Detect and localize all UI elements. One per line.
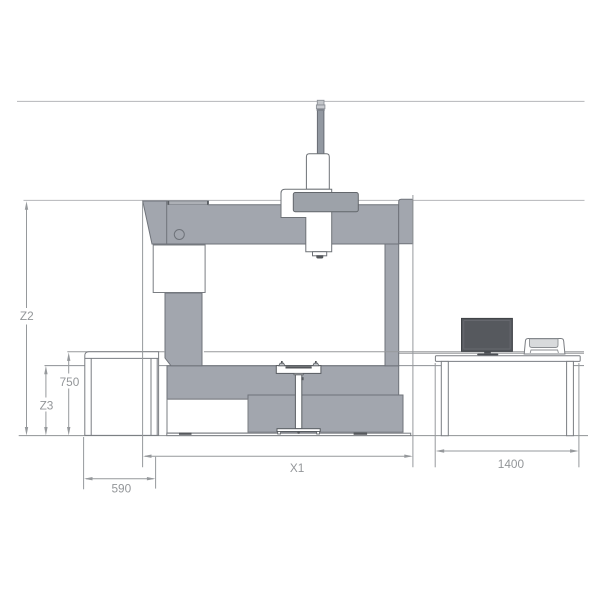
svg-text:590: 590 bbox=[112, 482, 132, 496]
svg-text:Z2: Z2 bbox=[20, 309, 34, 323]
svg-text:Z3: Z3 bbox=[40, 398, 54, 412]
svg-text:750: 750 bbox=[60, 375, 80, 389]
svg-text:X1: X1 bbox=[290, 461, 304, 475]
svg-text:1400: 1400 bbox=[498, 457, 525, 471]
